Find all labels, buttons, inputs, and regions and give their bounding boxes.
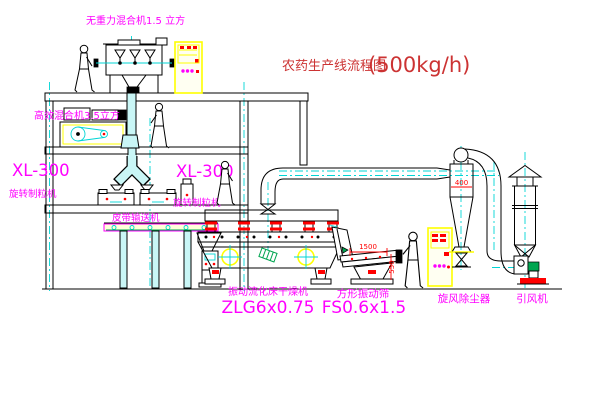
- dryer-risers: [205, 221, 339, 232]
- label-granulator-left-model: XL-300: [12, 161, 70, 180]
- fluid-bed-dryer: [198, 210, 342, 284]
- screen-height-dim: 550: [388, 260, 396, 273]
- label-dryer-model: ZLG6x0.75: [221, 298, 314, 318]
- vibration-motor-left: [218, 245, 242, 269]
- control-cabinet-right: [428, 228, 452, 286]
- worker-top-floor: [75, 45, 95, 92]
- label-belt-conveyor: 皮带输送机: [112, 212, 160, 224]
- induced-draft-fan: [514, 256, 549, 284]
- flowsheet-drawing: 1500 550 400: [0, 0, 600, 403]
- annotations: 无重力混合机1.5 立方 高效混合机3.5立方 XL-300 旋转制粒机 XL-…: [9, 14, 548, 318]
- dryer-motor: [259, 248, 277, 262]
- cad-flowsheet-canvas: 1500 550 400: [0, 0, 600, 403]
- label-granulator-mid-name: 旋转制粒机: [173, 197, 221, 209]
- worker-second-floor: [151, 103, 169, 148]
- label-gravity-mixer: 无重力混合机1.5 立方: [86, 14, 185, 27]
- label-fan: 引风机: [516, 292, 548, 305]
- granulator-left: [98, 190, 134, 206]
- label-screen-model: FS0.6x1.5: [322, 298, 406, 318]
- vibrating-screen: 1500 550: [330, 225, 402, 284]
- granulator-right: [140, 190, 176, 206]
- label-dryer-name: 振动流化床干燥机: [228, 285, 308, 298]
- vibration-motor-right: [294, 245, 318, 269]
- dimension-400: 400: [451, 179, 472, 187]
- label-granulator-left-name: 旋转制粒机: [9, 188, 57, 200]
- control-cabinet-top: [175, 42, 202, 93]
- y-distribution-pipe: [111, 155, 153, 190]
- drawing-title-capacity: (500kg/h): [368, 53, 470, 77]
- exhaust-duct: [261, 168, 437, 214]
- cyclone-dia-dim: 400: [455, 179, 468, 187]
- label-cyclone: 旋风除尘器: [438, 292, 491, 305]
- worker-ground-floor: [403, 232, 423, 288]
- label-high-eff-mixer: 高效混合机3.5立方: [34, 109, 120, 122]
- screen-length-dim: 1500: [359, 243, 377, 251]
